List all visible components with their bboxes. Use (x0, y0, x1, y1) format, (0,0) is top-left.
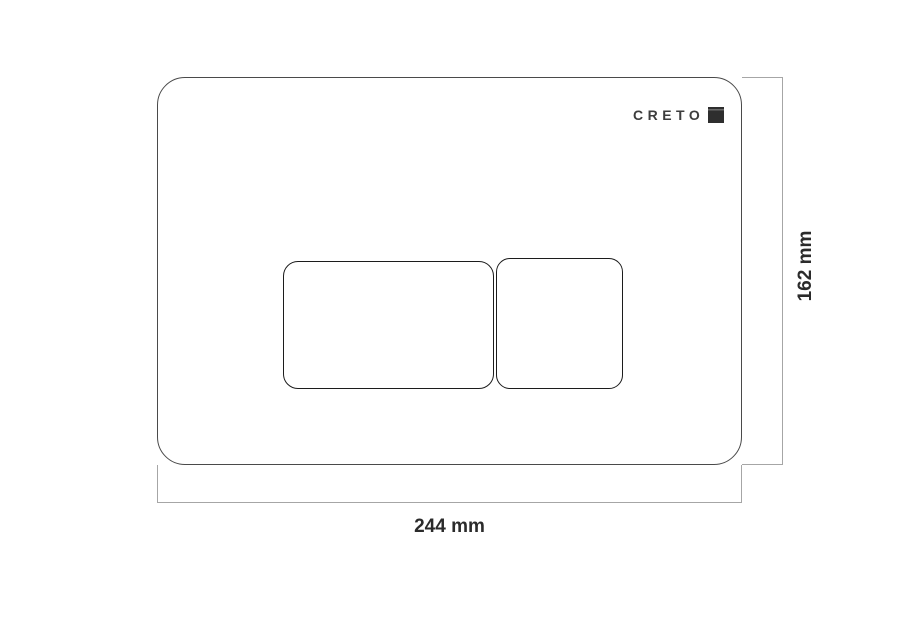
flush-button-small (496, 258, 623, 389)
brand-logo: CRETO (633, 106, 724, 124)
brand-logo-mark-square (708, 107, 724, 123)
flush-button-large (283, 261, 494, 389)
dimension-drawing: CRETO 244 mm 162 mm (0, 0, 900, 624)
width-dimension-line (157, 465, 742, 503)
brand-logo-text: CRETO (633, 106, 704, 124)
width-dimension-label: 244 mm (157, 516, 742, 538)
height-dimension-label: 162 mm (794, 206, 818, 326)
height-dimension-line (742, 77, 783, 465)
